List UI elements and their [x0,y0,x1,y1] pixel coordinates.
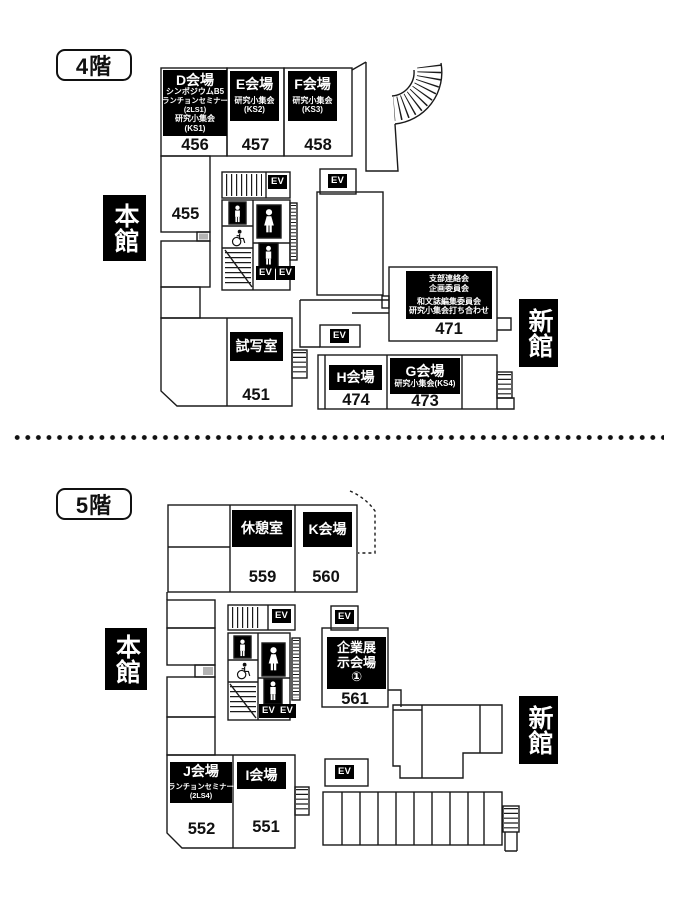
floor4-label: 4階 [56,49,132,81]
elevator-badge: EV [256,266,275,280]
room-number-456: 456 [163,137,227,154]
room-number-551: 551 [237,819,295,836]
exhibition-line: 示会場 [337,656,376,671]
floor4-side-staircase-icon [292,350,307,378]
room-number-455: 455 [161,206,210,223]
floor5-label: 5階 [56,488,132,520]
room-number-560: 560 [295,569,357,586]
room-label-d: D会場 シンポジウムB5 ランチョンセミナー (2LS1) 研究小集会 (KS1… [163,70,227,136]
room-i-title: I会場 [246,768,278,783]
door-icon [229,202,246,224]
room-g-line: 研究小集会(KS4) [395,379,456,388]
restroom-female-icon [257,205,281,238]
meetings-line: 支部連絡会 [429,274,469,283]
elevator-badge: EV [335,610,354,624]
room-j-title: J会場 [183,764,219,779]
room-j-line: (2LS4) [190,792,212,801]
floor5-side-staircase-icon [295,787,309,815]
floor4-lower-staircase-icon [225,250,252,287]
room-number-561: 561 [322,691,388,708]
room-label-e: E会場 研究小集会 (KS2) [230,71,279,121]
room-number-457: 457 [227,137,284,154]
room-e-line: (KS2) [244,105,265,114]
floor5-label-text: 5階 [76,488,112,520]
restroom-male-icon [259,243,278,268]
accessible-restroom-icon [233,230,245,246]
floor4-new-building-label: 新館 [519,299,558,367]
elevator-badge: EV [272,609,291,623]
room-k-title: K会場 [308,522,346,537]
room-d-line: (KS1) [185,124,206,133]
floor4-east-staircase-icon [497,372,512,398]
room-e-line: 研究小集会 [235,96,275,105]
room-number-458: 458 [284,137,352,154]
room-number-559: 559 [230,569,295,586]
room-label-g: G会場 研究小集会(KS4) [390,358,460,394]
room-label-i: I会場 [237,762,286,789]
room-label-f: F会場 研究小集会 (KS3) [288,71,337,121]
room-label-j: J会場 ランチョンセミナー (2LS4) [170,762,232,803]
floor5-lower-staircase-icon [230,684,256,718]
room-label-rest: 休憩室 [232,510,292,547]
elevator-badge: EV [268,175,287,189]
restroom-female-icon [262,643,285,676]
restroom-male-icon [264,679,282,704]
floor4-label-text: 4階 [76,49,112,81]
meetings-line: 研究小集会打ち合わせ [409,306,489,315]
exhibition-line: 企業展 [337,641,376,656]
room-label-meetings-471: 支部連絡会 企画委員会 和文誌編集委員会 研究小集会打ち合わせ [406,271,492,319]
meetings-line: 企画委員会 [429,284,469,293]
accessible-restroom-icon [238,663,250,679]
room-f-line: 研究小集会 [293,96,333,105]
room-g-title: G会場 [406,364,445,379]
elevator-badge: EV [335,765,354,779]
floor5-main-building-label: 本館 [105,628,147,690]
elevator-badge: EV [328,174,347,188]
room-label-k: K会場 [303,512,352,547]
floor5-new-building-label: 新館 [519,696,558,764]
room-number-473: 473 [390,393,460,410]
elevator-badge: EV [259,704,278,718]
room-d-title: D会場 [176,73,214,88]
elevator-badge: EV [330,329,349,343]
room-h-title: H会場 [336,370,374,385]
preview-room-title: 試写室 [236,339,278,354]
room-label-h: H会場 [329,365,382,390]
room-f-title: F会場 [294,77,331,92]
rest-room-title: 休憩室 [241,521,283,536]
room-f-line: (KS3) [302,105,323,114]
curved-staircase-icon [352,62,442,171]
room-number-552: 552 [170,821,233,838]
room-number-471: 471 [406,321,492,338]
elevator-badge: EV [277,704,296,718]
exhibition-line: ① [351,670,362,685]
floor-separator-dots [14,434,664,441]
room-number-474: 474 [325,392,387,409]
room-d-line: 研究小集会 [175,114,215,123]
door-icon [234,636,251,658]
room-e-title: E会場 [236,77,273,92]
room-label-exhibition: 企業展 示会場 ① [327,637,386,689]
floor-plan-page: 4階 本館 新館 D会場 シンポジウムB5 ランチョンセミナー (2LS1) 研… [0,0,677,909]
room-label-preview: 試写室 [230,332,283,361]
floor4-main-building-label: 本館 [103,195,146,261]
elevator-badge: EV [276,266,295,280]
room-number-451: 451 [228,387,284,404]
floor5-east-staircase-icon [503,806,519,851]
